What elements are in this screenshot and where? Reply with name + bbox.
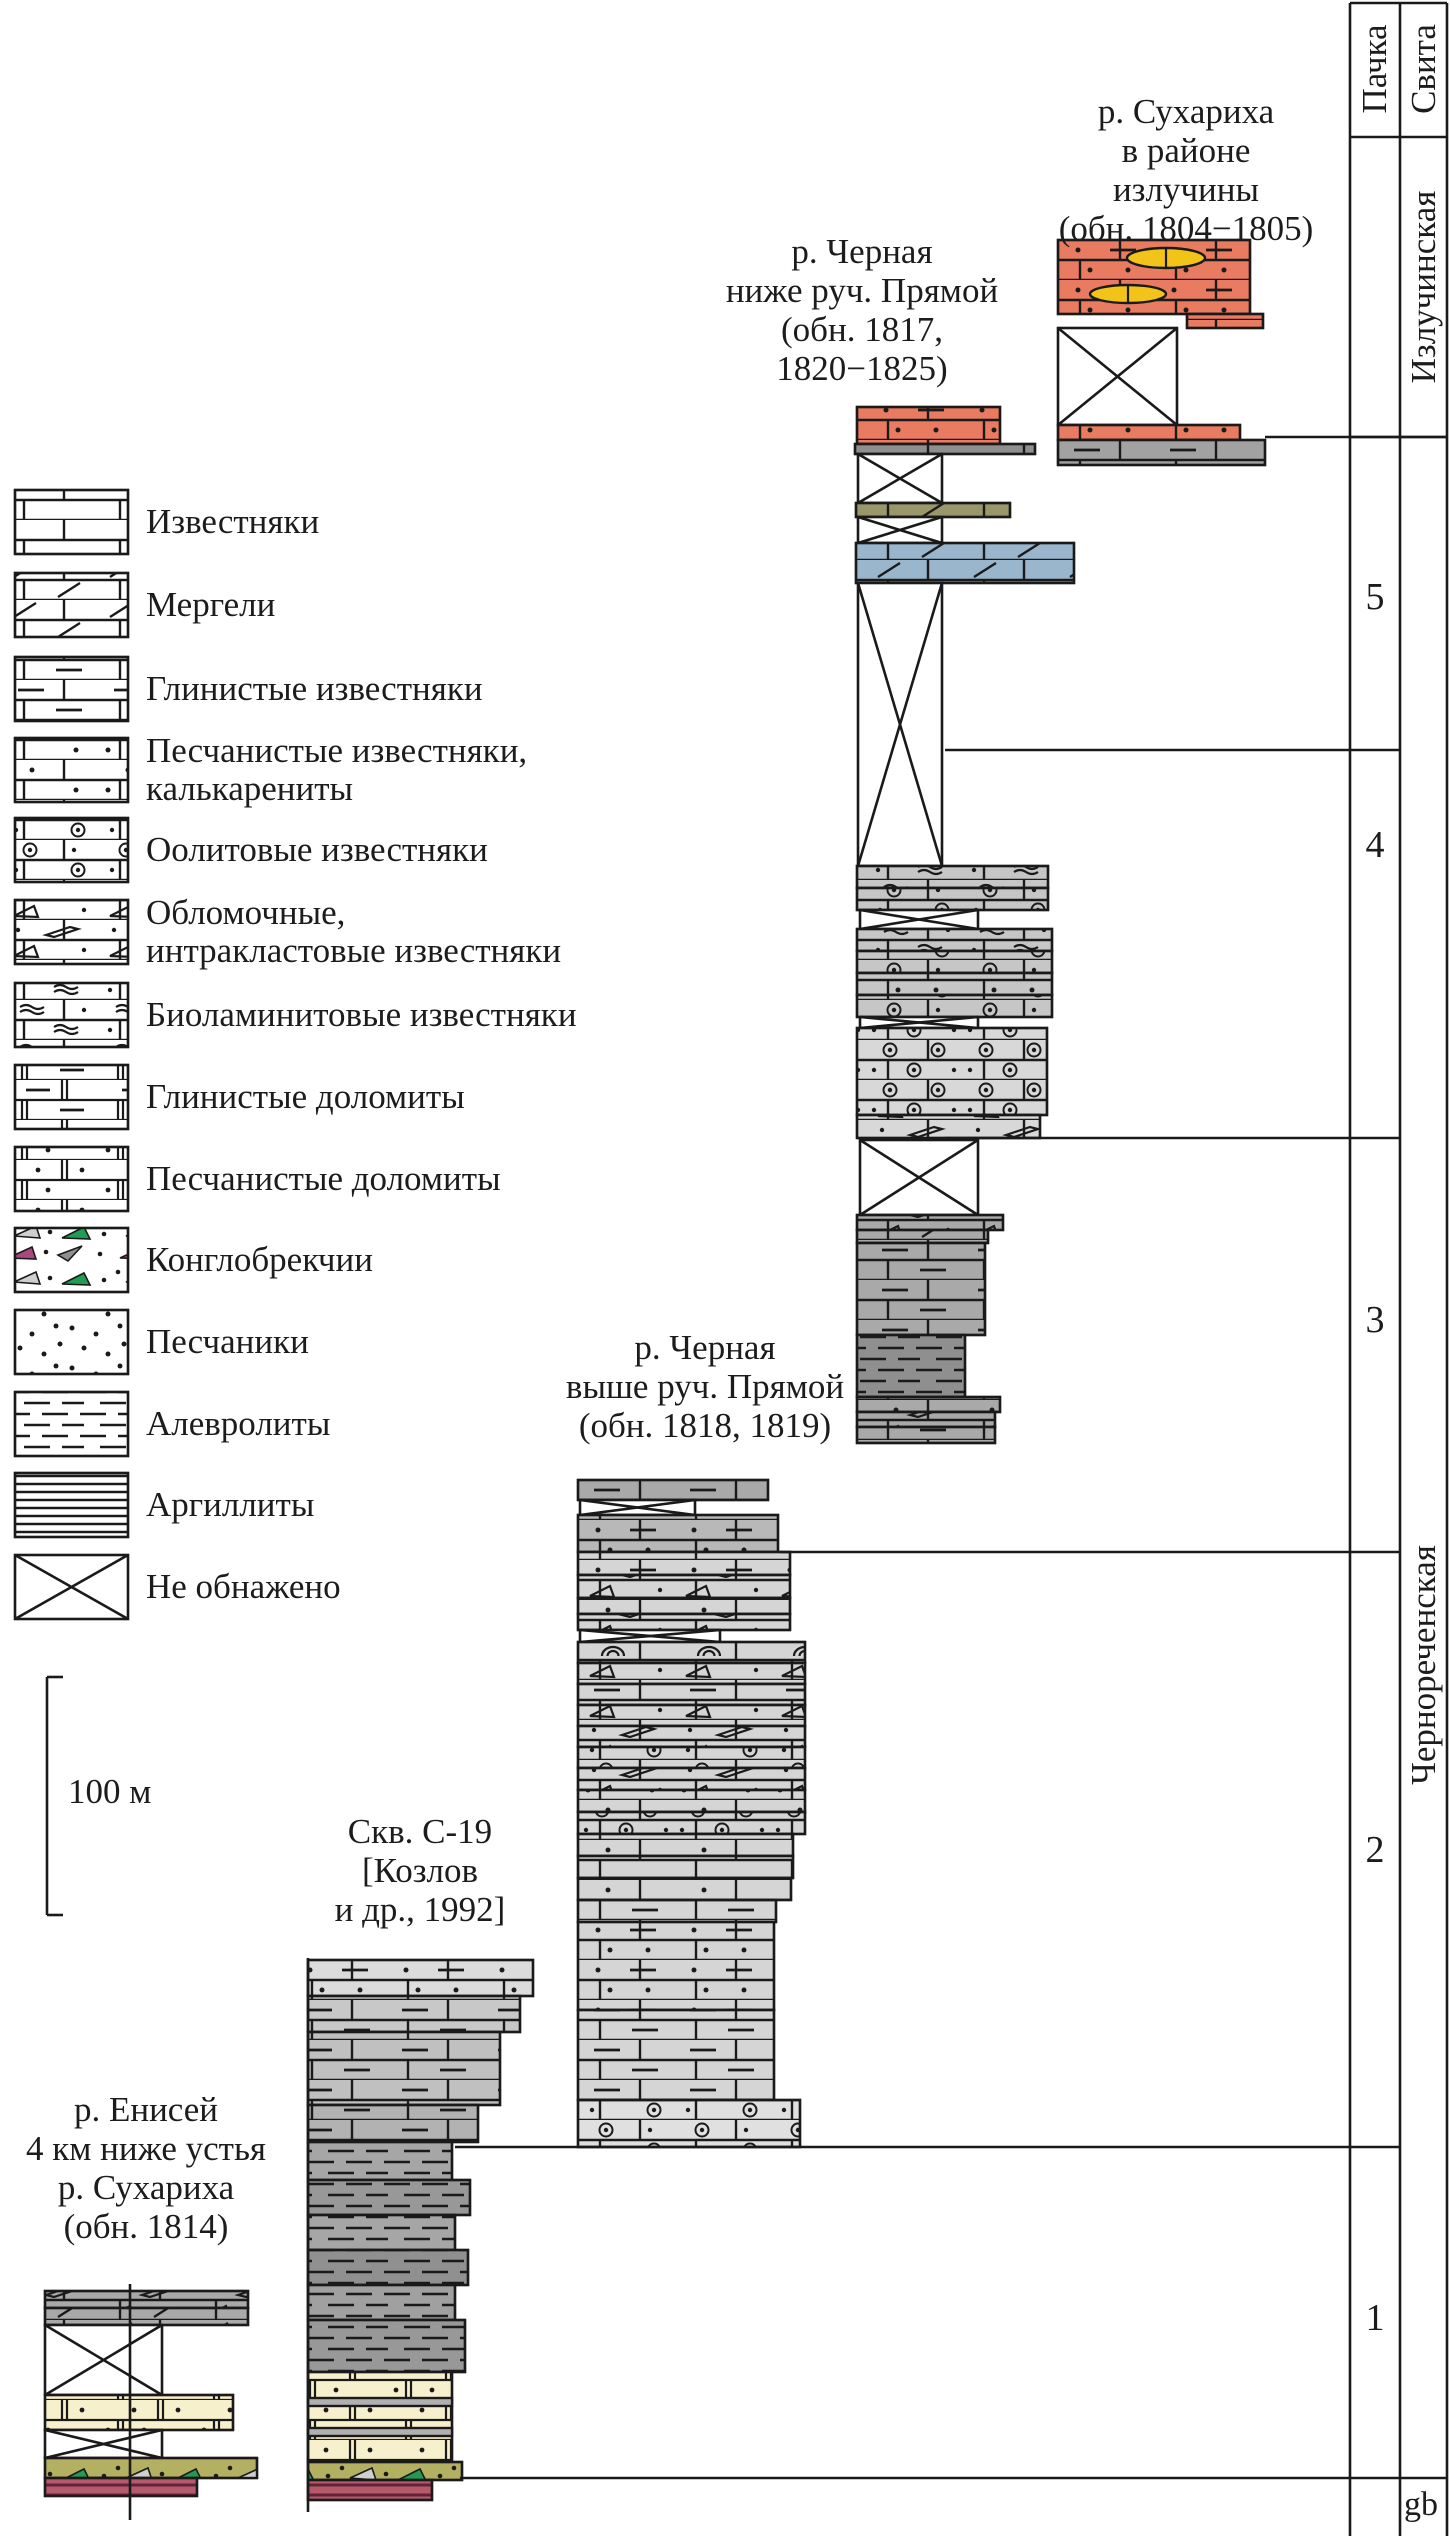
legend-item-label: Биоламинитовые известняки [146, 996, 577, 1034]
pachka-column-header: Пачка [1355, 24, 1395, 113]
legend-item: Биоламинитовые известняки [146, 983, 577, 1047]
member-number-1: 1 [1366, 2296, 1385, 2340]
legend-item-label: Аргиллиты [146, 1486, 314, 1524]
svita-column-header: Свита [1404, 24, 1444, 114]
lithologic-unit [308, 2428, 452, 2436]
legend-item-label: Глинистые доломиты [146, 1078, 465, 1116]
legend-item-label: Песчанистые известняки, калькарениты [146, 732, 527, 808]
legend-item-label: Песчанистые доломиты [146, 1160, 501, 1198]
legend-item-label: Известняки [146, 503, 319, 541]
legend-item-label: Алевролиты [146, 1405, 330, 1443]
legend-item-label: Конглобрекчии [146, 1241, 373, 1279]
formation-chernorechenskaya: Чернореченская [1404, 1545, 1444, 1785]
legend-item-label: Мергели [146, 586, 275, 624]
column-label-enisey: р. Енисей 4 км ниже устья р. Сухариха (о… [26, 2090, 266, 2246]
legend-item-label: Песчаники [146, 1323, 309, 1361]
legend-item: Песчаники [146, 1310, 309, 1374]
legend-item: Оолитовые известняки [146, 818, 488, 882]
legend-item: Конглобрекчии [146, 1228, 373, 1292]
legend-item: Мергели [146, 573, 275, 637]
legend-item: Алевролиты [146, 1392, 330, 1456]
formation-izluchinskaya: Излучинская [1404, 191, 1444, 384]
legend-item: Обломочные, интракластовые известняки [146, 900, 561, 964]
column-label-skv-c19: Скв. С-19 [Козлов и др., 1992] [335, 1812, 506, 1929]
legend-item: Глинистые доломиты [146, 1065, 465, 1129]
member-number-3: 3 [1366, 1298, 1385, 1342]
legend-item-label: Глинистые известняки [146, 670, 483, 708]
legend-item: Глинистые известняки [146, 657, 483, 721]
legend-item: Песчанистые доломиты [146, 1147, 501, 1211]
lithologic-unit [308, 2398, 452, 2406]
legend-item-label: Не обнажено [146, 1568, 341, 1606]
legend-item-label: Оолитовые известняки [146, 831, 488, 869]
legend-item: Аргиллиты [146, 1473, 314, 1537]
legend-item: Песчанистые известняки, калькарениты [146, 738, 527, 802]
legend-item-label: Обломочные, интракластовые известняки [146, 894, 561, 970]
gb-unit-label: gb [1404, 2486, 1438, 2524]
stratigraphic-correlation-chart: Пачка Свита Излучинская Чернореченская р… [0, 0, 1450, 2536]
member-number-5: 5 [1366, 575, 1385, 619]
scale-bar-label: 100 м [68, 1772, 151, 1812]
member-number-4: 4 [1366, 823, 1385, 867]
column-label-chernaya-vyshe: р. Черная выше руч. Прямой (обн. 1818, 1… [566, 1328, 844, 1445]
member-number-2: 2 [1366, 1828, 1385, 1872]
column-label-sukhariha: р. Сухариха в районе излучины (обн. 1804… [1054, 92, 1318, 248]
legend-item: Не обнажено [146, 1555, 341, 1619]
column-label-chernaya-nizhe: р. Черная ниже руч. Прямой (обн. 1817, 1… [726, 232, 998, 388]
legend-item: Известняки [146, 490, 319, 554]
